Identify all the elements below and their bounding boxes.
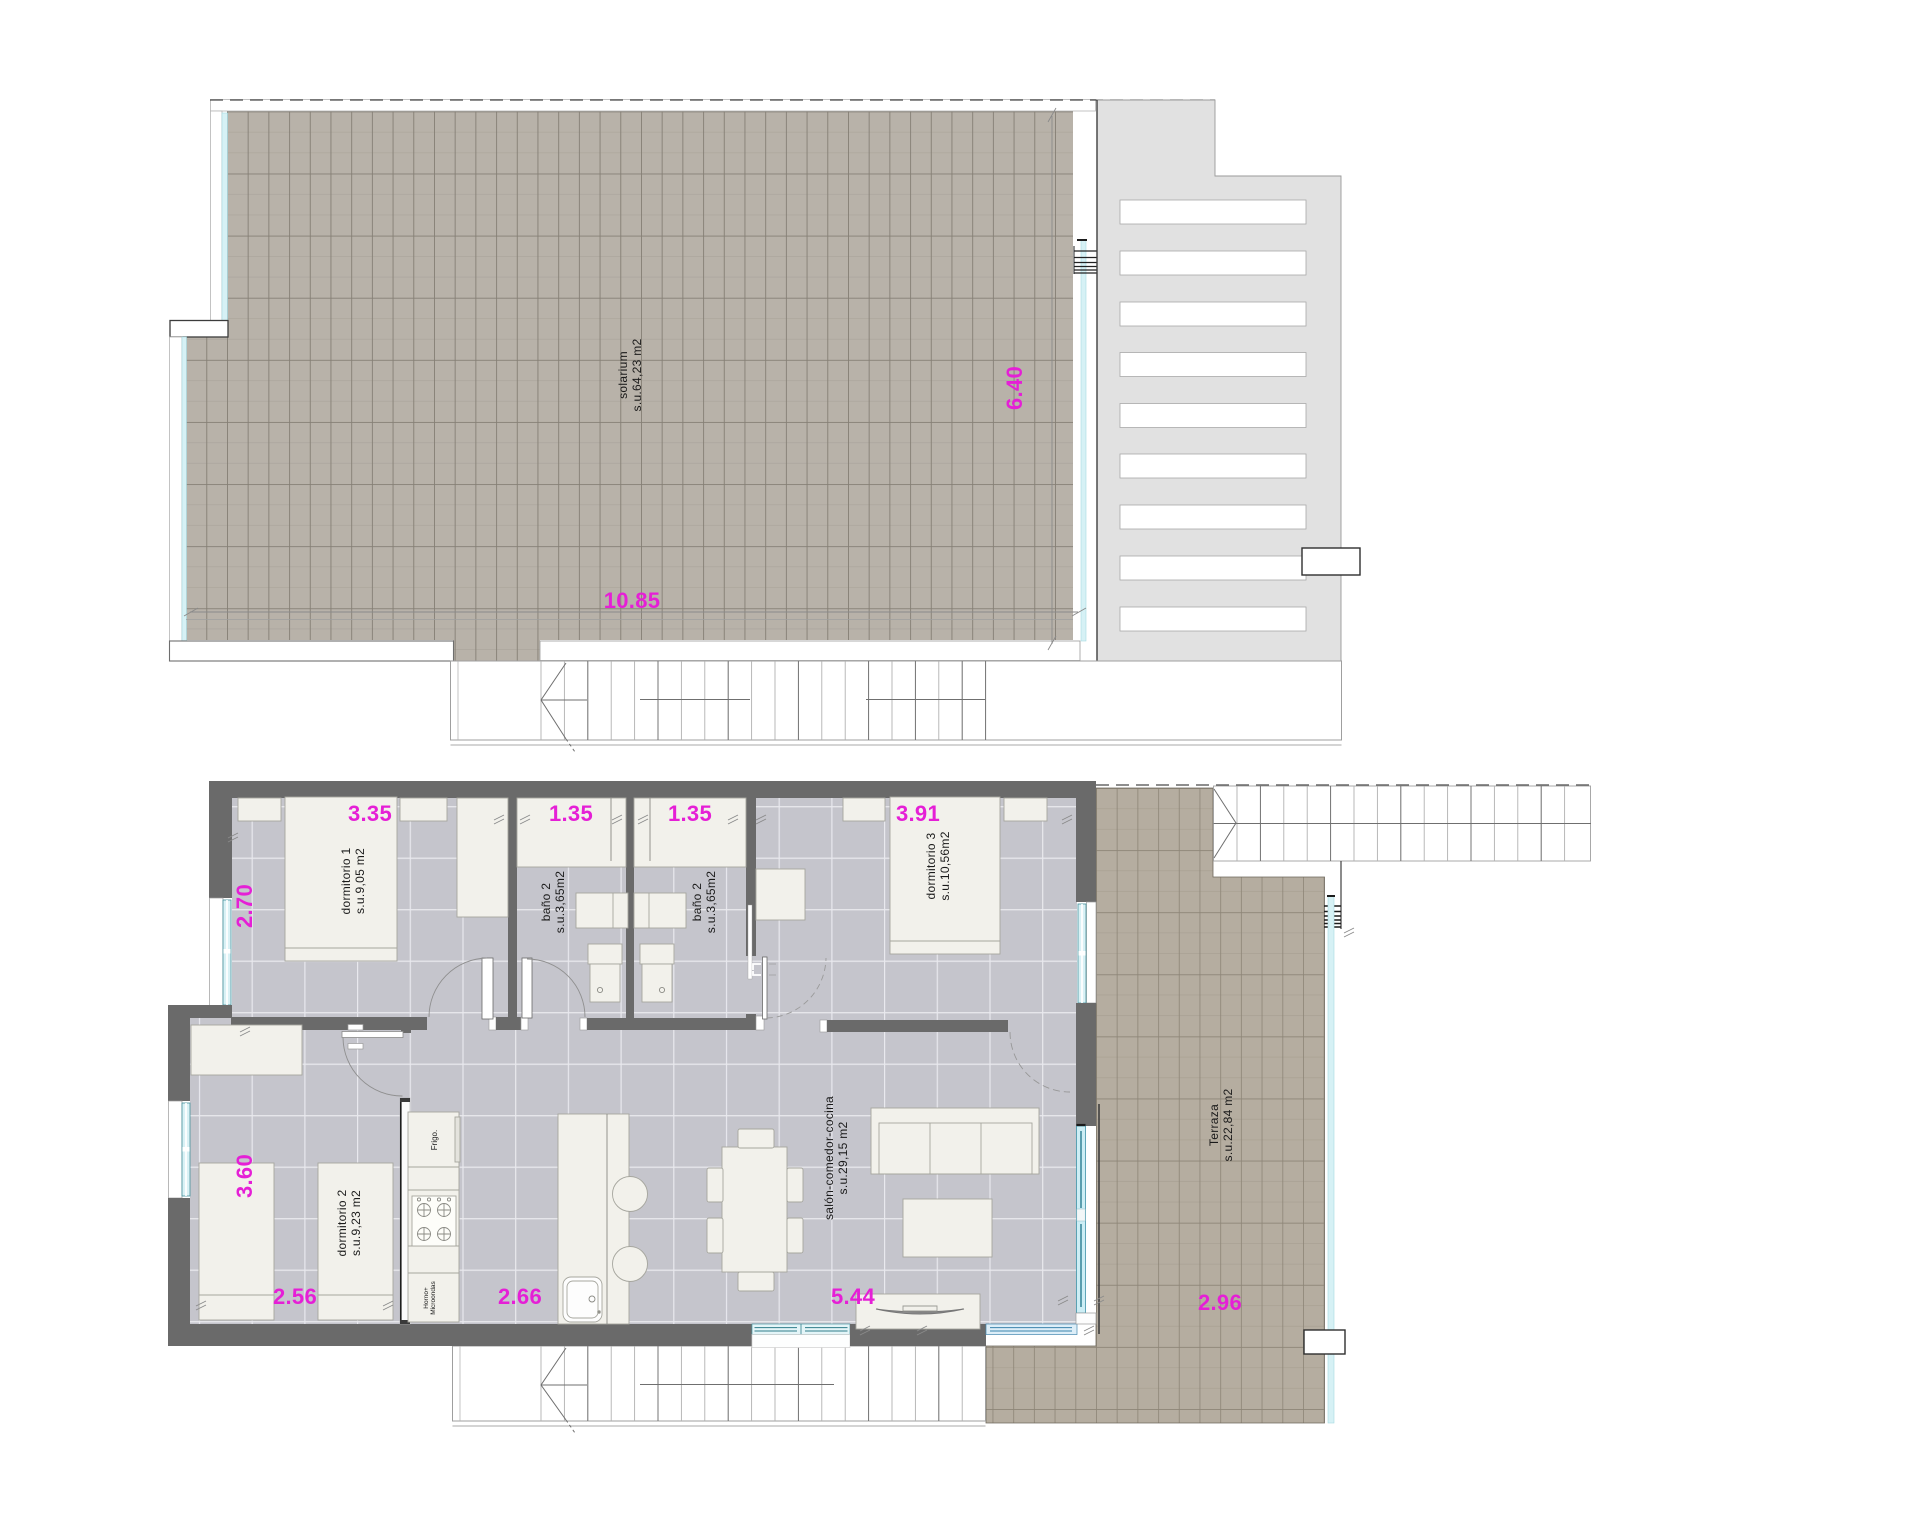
svg-text:5.44: 5.44: [831, 1284, 875, 1309]
svg-text:dormitorio 1s.u.9,05 m2: dormitorio 1s.u.9,05 m2: [339, 848, 367, 915]
svg-text:1.35: 1.35: [668, 801, 712, 826]
svg-text:2.66: 2.66: [498, 1284, 542, 1309]
svg-text:6.40: 6.40: [1002, 366, 1027, 410]
svg-text:dormitorio 2s.u.9,23 m2: dormitorio 2s.u.9,23 m2: [335, 1190, 363, 1257]
svg-text:Frigo.: Frigo.: [430, 1130, 439, 1150]
svg-text:2.56: 2.56: [273, 1284, 317, 1309]
svg-text:3.91: 3.91: [896, 801, 940, 826]
svg-text:1.35: 1.35: [549, 801, 593, 826]
svg-text:10.85: 10.85: [604, 588, 661, 613]
svg-text:3.60: 3.60: [232, 1154, 257, 1198]
svg-text:dormitorio 3s.u.10,56m2: dormitorio 3s.u.10,56m2: [924, 831, 952, 900]
svg-text:2.70: 2.70: [232, 884, 257, 928]
svg-text:3.35: 3.35: [348, 801, 392, 826]
svg-text:2.96: 2.96: [1198, 1290, 1242, 1315]
